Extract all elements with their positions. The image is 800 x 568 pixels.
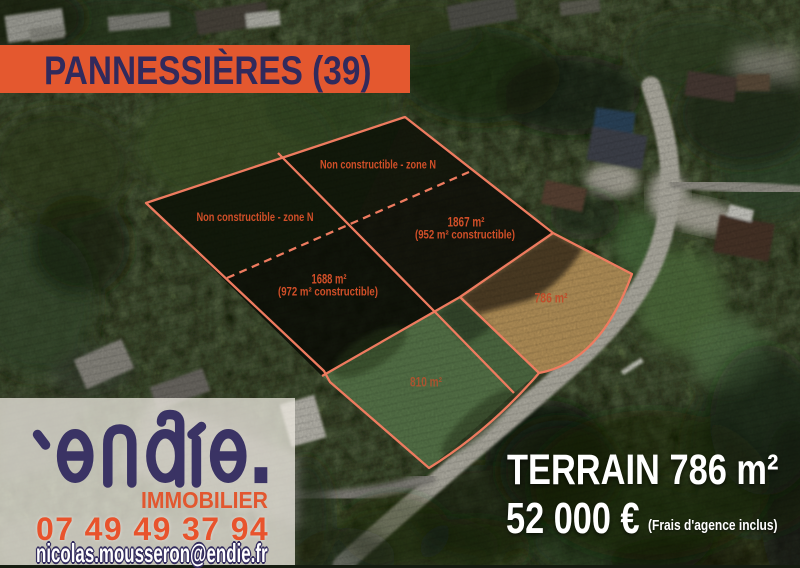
svg-text:Non constructible - zone N: Non constructible - zone N <box>197 212 314 224</box>
svg-text:(952 m² constructible): (952 m² constructible) <box>415 228 515 242</box>
svg-text:810 m²: 810 m² <box>410 375 442 390</box>
svg-text:(972 m² constructible): (972 m² constructible) <box>278 285 378 299</box>
svg-text:Non constructible - zone N: Non constructible - zone N <box>320 160 436 172</box>
svg-text:786 m²: 786 m² <box>535 291 568 306</box>
